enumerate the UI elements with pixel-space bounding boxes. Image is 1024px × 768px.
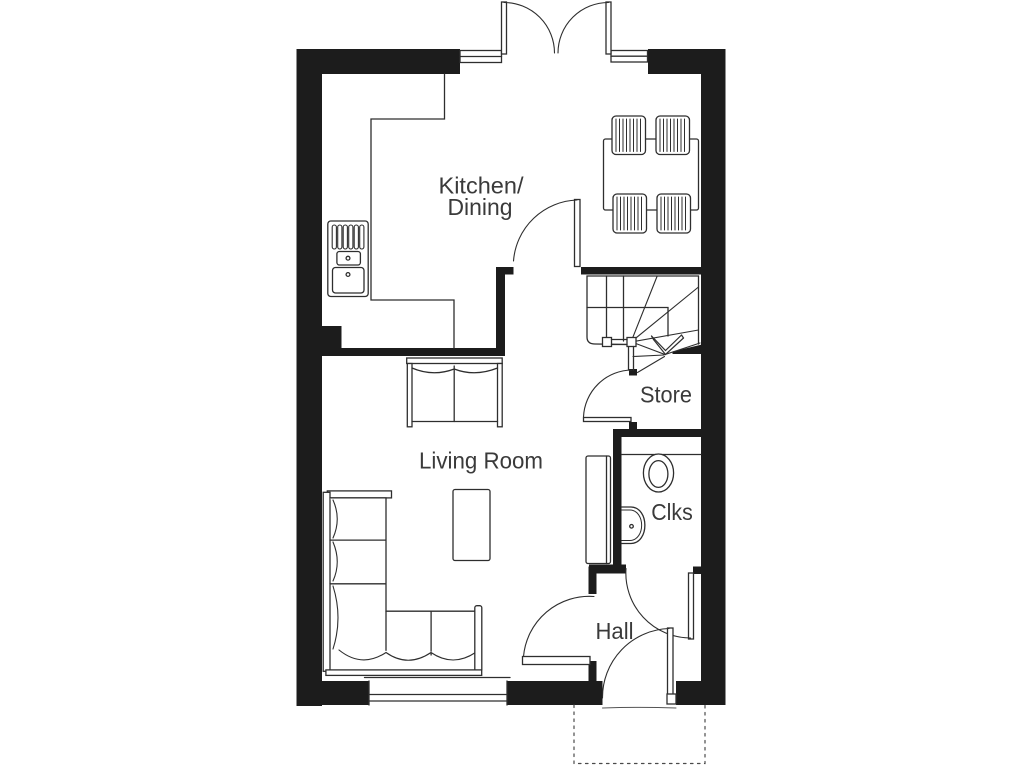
svg-text:Store: Store	[640, 382, 692, 408]
svg-text:Living Room: Living Room	[419, 448, 543, 474]
svg-text:Hall: Hall	[596, 618, 634, 644]
svg-text:Dining: Dining	[448, 194, 513, 220]
svg-text:Clks: Clks	[651, 499, 693, 525]
